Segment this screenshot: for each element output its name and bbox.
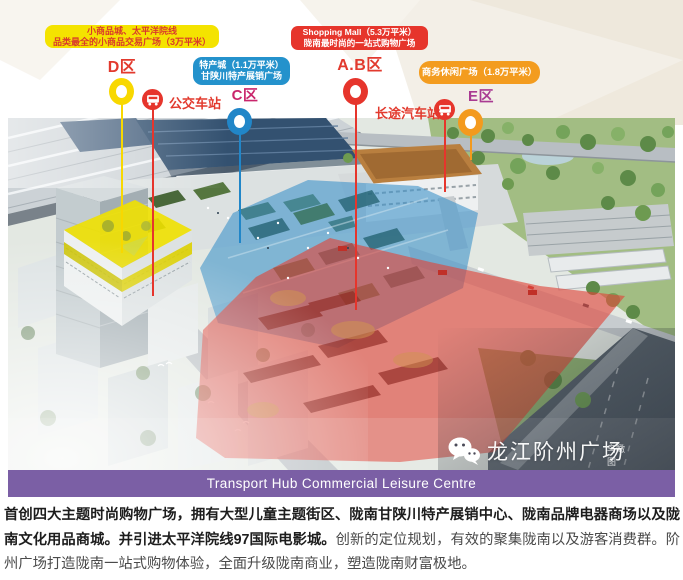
watermark-brand: 龙江阶州广场 (487, 436, 625, 466)
bubble-ab-zone: Shopping Mall（5.3万平米） 陇南最时尚的一站式购物广场 (291, 26, 428, 50)
leader-line-e (470, 134, 472, 160)
bubble-c-zone: 特产城（1.1万平米） 甘陕川特产展销广场 (193, 57, 290, 85)
zone-label-ab: A.B区 (334, 51, 386, 75)
aerial-rendering (8, 118, 675, 470)
map-pin-e-icon (458, 109, 483, 136)
bubble-ab-line2: 陇南最时尚的一站式购物广场 (304, 38, 416, 49)
bubble-d-zone: 小商品城、太平洋院线 品类最全的小商品交易广场（3万平米） (45, 25, 219, 48)
bubble-d-line1: 小商品城、太平洋院线 (87, 26, 177, 37)
bubble-d-line2: 品类最全的小商品交易广场（3万平米） (53, 37, 211, 48)
bubble-c-line2: 甘陕川特产展销广场 (201, 71, 282, 82)
zone-label-c: C区 (226, 84, 264, 105)
banner: Transport Hub Commercial Leisure Centre (8, 470, 675, 497)
haze-topleft (8, 118, 228, 188)
bubble-ab-line1: Shopping Mall（5.3万平米） (303, 27, 417, 38)
bus-station-label: 公交车站 (169, 93, 221, 112)
leader-line-d (121, 103, 123, 253)
watermark: 龙江阶州广场 鸟瞰图 (447, 436, 625, 466)
watermark-note: 鸟瞰图 (607, 442, 625, 468)
bubble-c-line1: 特产城（1.1万平米） (199, 60, 284, 71)
bubble-e-zone: 商务休闲广场（1.8万平米） (419, 61, 540, 84)
leader-line-ab (355, 104, 357, 310)
map-pin-d-icon (109, 78, 134, 105)
leader-line-c (239, 133, 241, 243)
wechat-icon (447, 436, 481, 466)
zone-label-d: D区 (103, 53, 141, 77)
bubble-e-line1: 商务休闲广场（1.8万平米） (422, 67, 537, 78)
zone-label-e: E区 (462, 85, 500, 106)
bus-glyph (146, 94, 160, 106)
coach-station-label: 长途汽车站 (375, 103, 440, 122)
map-pin-ab-icon (343, 78, 368, 105)
bus-station-icon (142, 89, 163, 110)
leader-line-coach (444, 120, 446, 192)
leader-line-bus (152, 109, 154, 296)
map-pin-c-icon (227, 108, 252, 135)
banner-title: Transport Hub Commercial Leisure Centre (207, 476, 476, 491)
promo-page: 小商品城、太平洋院线 品类最全的小商品交易广场（3万平米） 特产城（1.1万平米… (0, 0, 683, 580)
description-paragraph: 首创四大主题时尚购物广场，拥有大型儿童主题街区、陇南甘陕川特产展销中心、陇南品牌… (4, 503, 680, 577)
